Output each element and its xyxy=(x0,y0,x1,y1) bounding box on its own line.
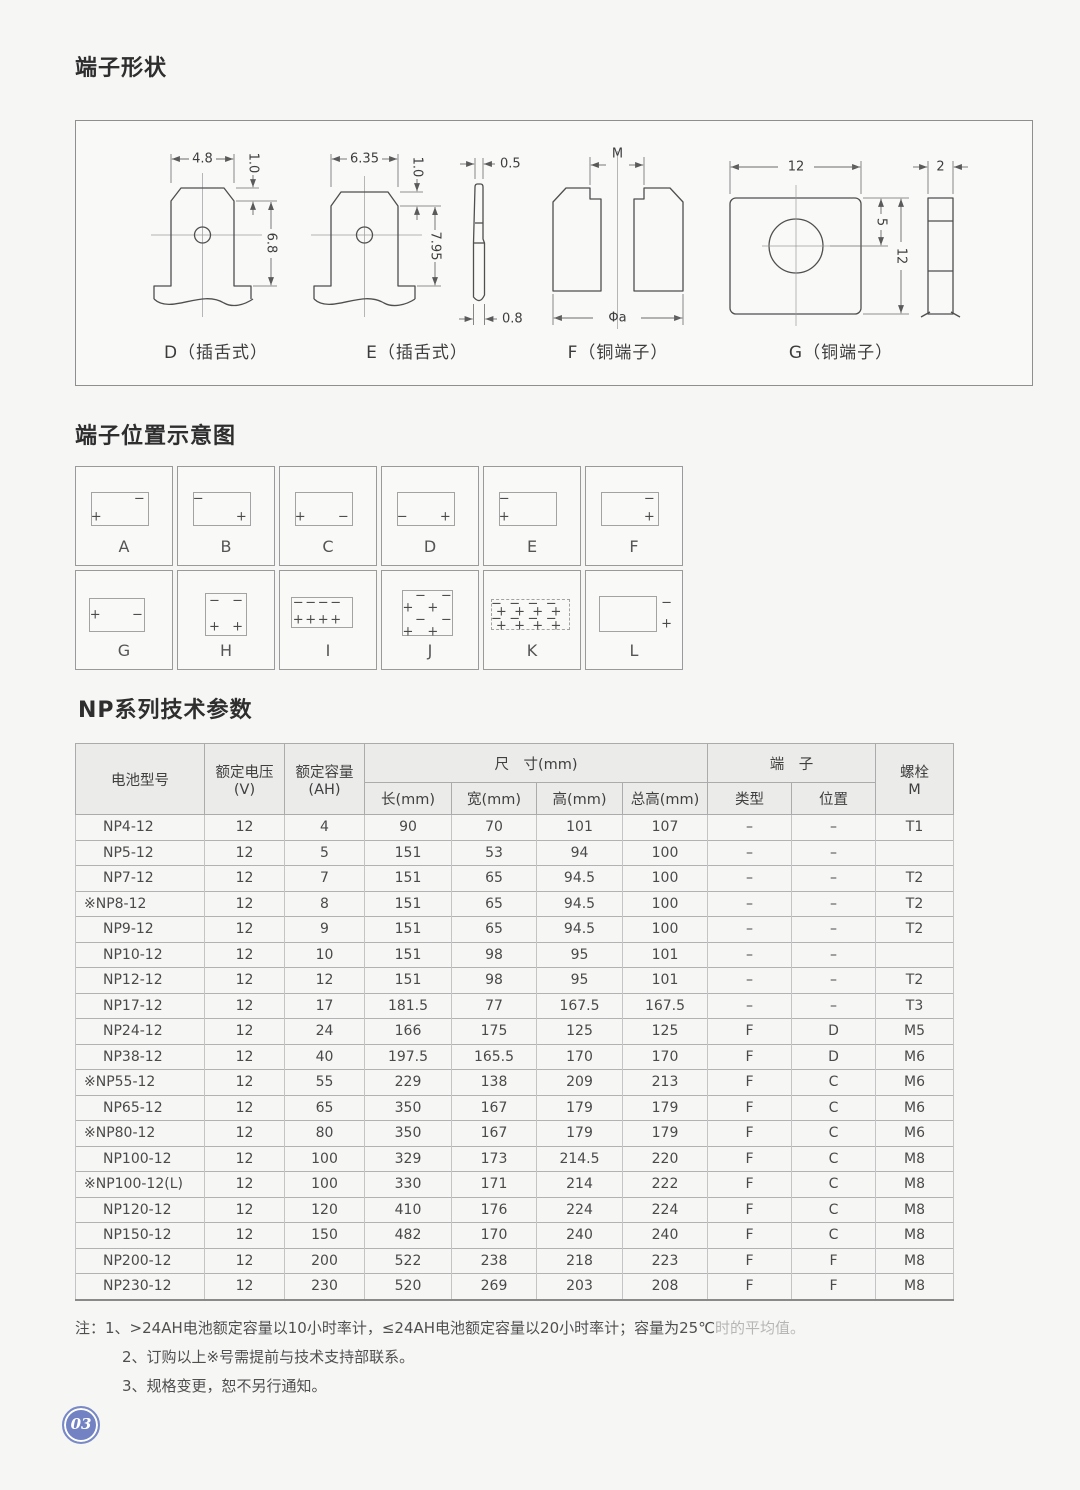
polarity-mark: − xyxy=(134,493,145,506)
terminal-shapes-panel: 4.8 1.0 6.8 D（插舌式） 6.35 xyxy=(75,120,1033,386)
col-header-bolt: 螺栓 M xyxy=(876,744,954,815)
value-cell: 167 xyxy=(452,1095,537,1121)
model-cell: NP9-12 xyxy=(76,917,205,943)
value-cell: – xyxy=(708,942,792,968)
value-cell: 5 xyxy=(285,840,365,866)
model-cell: ※NP55-12 xyxy=(76,1070,205,1096)
value-cell: 329 xyxy=(365,1146,452,1172)
dim-g-height: 12 xyxy=(894,248,909,265)
value-cell: 65 xyxy=(452,917,537,943)
value-cell: 12 xyxy=(205,866,285,892)
value-cell: C xyxy=(792,1197,876,1223)
value-cell: 12 xyxy=(205,1070,285,1096)
value-cell: F xyxy=(708,1223,792,1249)
footnotes: 注：1、>24AH电池额定容量以10小时率计，≤24AH电池额定容量以20小时率… xyxy=(75,1314,1080,1401)
value-cell: – xyxy=(708,840,792,866)
label-terminal-g: G（铜端子） xyxy=(789,343,893,363)
polarity-mark: − xyxy=(397,510,408,523)
model-cell: NP12-12 xyxy=(76,968,205,994)
dim-tab-thickness-bottom: 0.8 xyxy=(502,312,523,327)
polarity-mark: + xyxy=(427,602,438,615)
polarity-mark: − xyxy=(644,493,655,506)
np-series-spec-table: 电池型号 额定电压 (V) 额定容量 (AH) 尺 寸(mm) 端 子 螺栓 M… xyxy=(75,743,954,1301)
value-cell: 224 xyxy=(537,1197,623,1223)
value-cell: 214.5 xyxy=(537,1146,623,1172)
value-cell: 214 xyxy=(537,1172,623,1198)
value-cell: 229 xyxy=(365,1070,452,1096)
polarity-mark: − xyxy=(293,597,304,610)
value-cell: 101 xyxy=(537,815,623,841)
value-cell: 138 xyxy=(452,1070,537,1096)
value-cell: 94.5 xyxy=(537,891,623,917)
terminal-position-cell-H: −−++H xyxy=(177,570,275,670)
polarity-mark: + xyxy=(236,510,247,523)
value-cell: 240 xyxy=(623,1223,708,1249)
value-cell: 218 xyxy=(537,1248,623,1274)
value-cell: D xyxy=(792,1019,876,1045)
cell-letter: I xyxy=(280,641,376,660)
polarity-mark: + xyxy=(318,614,329,627)
value-cell: 179 xyxy=(623,1095,708,1121)
cell-letter: A xyxy=(76,537,172,556)
value-cell: 100 xyxy=(623,891,708,917)
value-cell: 167 xyxy=(452,1121,537,1147)
model-cell: NP4-12 xyxy=(76,815,205,841)
col-header-terminal: 端 子 xyxy=(708,744,876,783)
value-cell: 12 xyxy=(205,1197,285,1223)
table-row: NP17-121217181.577167.5167.5––T3 xyxy=(76,993,954,1019)
col-header-width: 宽(mm) xyxy=(452,783,537,815)
value-cell: T3 xyxy=(876,993,954,1019)
col-header-capacity-line2: (AH) xyxy=(285,782,364,798)
value-cell: 12 xyxy=(205,815,285,841)
cell-letter: B xyxy=(178,537,274,556)
label-terminal-d: D（插舌式） xyxy=(164,343,268,363)
value-cell: 24 xyxy=(285,1019,365,1045)
value-cell: 12 xyxy=(205,993,285,1019)
page-number-badge: 03 xyxy=(62,1406,100,1444)
polarity-mark: + xyxy=(293,614,304,627)
terminal-position-cell-G: +−G xyxy=(75,570,173,670)
value-cell: F xyxy=(708,1121,792,1147)
polarity-mark: + xyxy=(496,619,507,632)
note-line-3: 3、规格变更，恕不另行通知。 xyxy=(75,1372,1080,1401)
polarity-mark: − xyxy=(338,510,349,523)
polarity-mark: + xyxy=(532,619,543,632)
value-cell: F xyxy=(708,1070,792,1096)
model-cell: NP230-12 xyxy=(76,1274,205,1300)
value-cell: 200 xyxy=(285,1248,365,1274)
polarity-mark: + xyxy=(644,510,655,523)
section-title-np-series: NP系列技术参数 xyxy=(78,696,1080,726)
value-cell: 238 xyxy=(452,1248,537,1274)
terminal-position-cell-L: −+L xyxy=(585,570,683,670)
model-cell: NP24-12 xyxy=(76,1019,205,1045)
dim-e-width: 6.35 xyxy=(350,152,379,167)
value-cell: 120 xyxy=(285,1197,365,1223)
table-row: NP230-1212230520269203208FFM8 xyxy=(76,1274,954,1300)
model-cell: NP150-12 xyxy=(76,1223,205,1249)
value-cell: M6 xyxy=(876,1070,954,1096)
value-cell: M8 xyxy=(876,1197,954,1223)
section-title-terminal-shapes: 端子形状 xyxy=(75,0,1080,84)
cell-letter: D xyxy=(382,537,478,556)
table-row: NP100-1212100329173214.5220FCM8 xyxy=(76,1146,954,1172)
value-cell: 65 xyxy=(285,1095,365,1121)
value-cell: 12 xyxy=(205,942,285,968)
value-cell: 94 xyxy=(537,840,623,866)
value-cell: 240 xyxy=(537,1223,623,1249)
drawing-terminal-e: 6.35 1.0 7.95 E（插舌式） xyxy=(311,152,468,364)
value-cell: 176 xyxy=(452,1197,537,1223)
value-cell: 165.5 xyxy=(452,1044,537,1070)
dim-g-thickness: 2 xyxy=(936,160,944,175)
value-cell: 94.5 xyxy=(537,917,623,943)
value-cell: – xyxy=(792,968,876,994)
value-cell: 80 xyxy=(285,1121,365,1147)
value-cell: 10 xyxy=(285,942,365,968)
polarity-mark: − xyxy=(132,609,143,622)
value-cell: 101 xyxy=(623,942,708,968)
value-cell: 520 xyxy=(365,1274,452,1300)
value-cell: 12 xyxy=(205,1095,285,1121)
value-cell xyxy=(876,840,954,866)
col-header-model: 电池型号 xyxy=(76,744,205,815)
table-row: NP120-1212120410176224224FCM8 xyxy=(76,1197,954,1223)
value-cell: 65 xyxy=(452,866,537,892)
value-cell: F xyxy=(792,1248,876,1274)
terminal-position-cell-J: −−++−−++J xyxy=(381,570,479,670)
value-cell: M8 xyxy=(876,1223,954,1249)
col-header-length: 长(mm) xyxy=(365,783,452,815)
model-cell: NP17-12 xyxy=(76,993,205,1019)
polarity-mark: + xyxy=(440,510,451,523)
value-cell: 410 xyxy=(365,1197,452,1223)
polarity-mark: + xyxy=(661,617,672,630)
cell-letter: K xyxy=(484,641,580,660)
value-cell: 482 xyxy=(365,1223,452,1249)
value-cell: 95 xyxy=(537,968,623,994)
model-cell: NP100-12 xyxy=(76,1146,205,1172)
polarity-mark: − xyxy=(441,614,452,627)
value-cell: 151 xyxy=(365,968,452,994)
model-cell: ※NP80-12 xyxy=(76,1121,205,1147)
value-cell: 179 xyxy=(537,1095,623,1121)
terminal-position-cell-B: −+B xyxy=(177,466,275,566)
value-cell: 98 xyxy=(452,942,537,968)
terminal-position-grid: −+A−+B+−C−+D−+E−+F+−G−−++H−−−−++++I−−++−… xyxy=(75,466,683,670)
value-cell: F xyxy=(708,1172,792,1198)
polarity-mark: − xyxy=(661,597,672,610)
value-cell: 151 xyxy=(365,917,452,943)
value-cell: 12 xyxy=(285,968,365,994)
table-row: NP4-121249070101107––T1 xyxy=(76,815,954,841)
col-header-height: 高(mm) xyxy=(537,783,623,815)
value-cell: 40 xyxy=(285,1044,365,1070)
polarity-mark: + xyxy=(514,619,525,632)
value-cell: 269 xyxy=(452,1274,537,1300)
value-cell: 4 xyxy=(285,815,365,841)
polarity-mark: − xyxy=(441,590,452,603)
value-cell: M6 xyxy=(876,1044,954,1070)
dim-tab-thickness-top: 0.5 xyxy=(500,157,521,172)
value-cell: F xyxy=(708,1248,792,1274)
value-cell: – xyxy=(708,968,792,994)
value-cell: 167.5 xyxy=(537,993,623,1019)
value-cell: 94.5 xyxy=(537,866,623,892)
value-cell: 181.5 xyxy=(365,993,452,1019)
value-cell: 224 xyxy=(623,1197,708,1223)
value-cell: – xyxy=(792,840,876,866)
value-cell: 350 xyxy=(365,1095,452,1121)
spec-table-body: NP4-121249070101107––T1NP5-1212515153941… xyxy=(76,815,954,1300)
value-cell: 173 xyxy=(452,1146,537,1172)
value-cell: 12 xyxy=(205,1121,285,1147)
terminal-position-cell-C: +−C xyxy=(279,466,377,566)
polarity-mark: + xyxy=(402,602,413,615)
value-cell: 12 xyxy=(205,1044,285,1070)
value-cell: 522 xyxy=(365,1248,452,1274)
value-cell: 12 xyxy=(205,1172,285,1198)
value-cell: – xyxy=(792,917,876,943)
value-cell: 12 xyxy=(205,968,285,994)
drawing-terminal-g: 12 5 12 2 G（铜端子） xyxy=(730,160,968,364)
value-cell: 12 xyxy=(205,1223,285,1249)
polarity-mark: − xyxy=(209,595,220,608)
terminal-position-cell-F: −+F xyxy=(585,466,683,566)
polarity-mark: − xyxy=(415,614,426,627)
table-row: NP24-121224166175125125FDM5 xyxy=(76,1019,954,1045)
value-cell: – xyxy=(792,993,876,1019)
value-cell: – xyxy=(792,942,876,968)
value-cell: 220 xyxy=(623,1146,708,1172)
dim-e-bevel: 1.0 xyxy=(410,157,425,178)
polarity-mark: + xyxy=(402,625,413,638)
model-cell: NP5-12 xyxy=(76,840,205,866)
model-cell: NP200-12 xyxy=(76,1248,205,1274)
value-cell: 230 xyxy=(285,1274,365,1300)
value-cell: M8 xyxy=(876,1274,954,1300)
table-row: NP12-1212121519895101––T2 xyxy=(76,968,954,994)
polarity-mark: − xyxy=(232,595,243,608)
polarity-mark: + xyxy=(232,620,243,633)
note-line-1-faded-text: 时的平均值。 xyxy=(715,1319,805,1337)
polarity-mark: + xyxy=(305,614,316,627)
polarity-mark: − xyxy=(330,597,341,610)
value-cell: 170 xyxy=(537,1044,623,1070)
model-cell: ※NP8-12 xyxy=(76,891,205,917)
polarity-mark: + xyxy=(90,609,101,622)
value-cell: 170 xyxy=(452,1223,537,1249)
value-cell: 17 xyxy=(285,993,365,1019)
value-cell: 12 xyxy=(205,917,285,943)
dim-d-width: 4.8 xyxy=(192,152,213,167)
note-line-1-text: 注：1、>24AH电池额定容量以10小时率计，≤24AH电池额定容量以20小时率… xyxy=(75,1319,715,1337)
value-cell: – xyxy=(708,866,792,892)
value-cell: 151 xyxy=(365,840,452,866)
value-cell: 77 xyxy=(452,993,537,1019)
cell-letter: J xyxy=(382,641,478,660)
value-cell: 100 xyxy=(623,917,708,943)
table-row: NP10-1212101519895101–– xyxy=(76,942,954,968)
value-cell: 222 xyxy=(623,1172,708,1198)
value-cell: D xyxy=(792,1044,876,1070)
value-cell: 7 xyxy=(285,866,365,892)
dim-e-height: 7.95 xyxy=(428,232,443,261)
polarity-mark: + xyxy=(330,614,341,627)
value-cell: T2 xyxy=(876,968,954,994)
value-cell: 55 xyxy=(285,1070,365,1096)
col-header-capacity: 额定容量 (AH) xyxy=(285,744,365,815)
battery-outline xyxy=(599,596,657,632)
value-cell: 12 xyxy=(205,1019,285,1045)
terminal-position-cell-E: −+E xyxy=(483,466,581,566)
value-cell: 12 xyxy=(205,1146,285,1172)
cell-letter: F xyxy=(586,537,682,556)
table-row: ※NP55-121255229138209213FCM6 xyxy=(76,1070,954,1096)
terminal-shapes-drawing: 4.8 1.0 6.8 D（插舌式） 6.35 xyxy=(76,121,1032,385)
col-header-total-height: 总高(mm) xyxy=(623,783,708,815)
value-cell: F xyxy=(708,1274,792,1300)
value-cell: 125 xyxy=(537,1019,623,1045)
value-cell: C xyxy=(792,1070,876,1096)
value-cell: 179 xyxy=(623,1121,708,1147)
col-header-terminal-type: 类型 xyxy=(708,783,792,815)
note-line-2: 2、订购以上※号需提前与技术支持部联系。 xyxy=(75,1343,1080,1372)
value-cell: – xyxy=(792,891,876,917)
table-row: NP5-121251515394100–– xyxy=(76,840,954,866)
value-cell: 151 xyxy=(365,866,452,892)
value-cell: C xyxy=(792,1172,876,1198)
dim-g-hole-offset: 5 xyxy=(874,218,889,226)
value-cell: 100 xyxy=(285,1146,365,1172)
value-cell: – xyxy=(708,993,792,1019)
value-cell: 95 xyxy=(537,942,623,968)
model-cell: NP7-12 xyxy=(76,866,205,892)
value-cell: M8 xyxy=(876,1146,954,1172)
value-cell: 98 xyxy=(452,968,537,994)
value-cell: F xyxy=(708,1019,792,1045)
value-cell: 12 xyxy=(205,840,285,866)
value-cell: 12 xyxy=(205,1274,285,1300)
value-cell: T2 xyxy=(876,866,954,892)
table-row: ※NP8-121281516594.5100––T2 xyxy=(76,891,954,917)
value-cell: C xyxy=(792,1095,876,1121)
label-terminal-e: E（插舌式） xyxy=(366,343,468,363)
model-cell: ※NP100-12(L) xyxy=(76,1172,205,1198)
polarity-mark: + xyxy=(499,510,510,523)
value-cell: 166 xyxy=(365,1019,452,1045)
polarity-mark: − xyxy=(193,493,204,506)
value-cell: M6 xyxy=(876,1121,954,1147)
value-cell: 208 xyxy=(623,1274,708,1300)
table-row: ※NP100-12(L)12100330171214222FCM8 xyxy=(76,1172,954,1198)
polarity-mark: + xyxy=(209,620,220,633)
drawing-tab-side-view: 0.5 0.8 xyxy=(459,157,523,327)
value-cell: 12 xyxy=(205,891,285,917)
value-cell: 151 xyxy=(365,942,452,968)
model-cell: NP10-12 xyxy=(76,942,205,968)
value-cell: 12 xyxy=(205,1248,285,1274)
polarity-mark: − xyxy=(305,597,316,610)
table-row: NP38-121240197.5165.5170170FDM6 xyxy=(76,1044,954,1070)
polarity-mark: + xyxy=(295,510,306,523)
value-cell: 209 xyxy=(537,1070,623,1096)
col-header-capacity-line1: 额定容量 xyxy=(285,761,364,782)
value-cell: T2 xyxy=(876,917,954,943)
col-header-dimensions: 尺 寸(mm) xyxy=(365,744,708,783)
value-cell: 8 xyxy=(285,891,365,917)
model-cell: NP120-12 xyxy=(76,1197,205,1223)
col-header-bolt-line1: 螺栓 xyxy=(876,761,953,782)
model-cell: NP65-12 xyxy=(76,1095,205,1121)
value-cell: 197.5 xyxy=(365,1044,452,1070)
table-row: NP150-1212150482170240240FCM8 xyxy=(76,1223,954,1249)
col-header-voltage-line1: 额定电压 xyxy=(205,761,284,782)
dim-f-diameter: Φa xyxy=(608,311,626,326)
value-cell: F xyxy=(708,1146,792,1172)
note-line-1: 注：1、>24AH电池额定容量以10小时率计，≤24AH电池额定容量以20小时率… xyxy=(75,1314,1080,1343)
value-cell: 125 xyxy=(623,1019,708,1045)
polarity-mark: − xyxy=(318,597,329,610)
dim-g-width: 12 xyxy=(788,160,805,175)
value-cell: M5 xyxy=(876,1019,954,1045)
col-header-voltage-line2: (V) xyxy=(205,782,284,798)
value-cell: 151 xyxy=(365,891,452,917)
value-cell: 100 xyxy=(623,840,708,866)
value-cell: 107 xyxy=(623,815,708,841)
value-cell: M8 xyxy=(876,1248,954,1274)
terminal-position-cell-I: −−−−++++I xyxy=(279,570,377,670)
value-cell: – xyxy=(792,815,876,841)
value-cell: M8 xyxy=(876,1172,954,1198)
terminal-position-cell-D: −+D xyxy=(381,466,479,566)
value-cell: 167.5 xyxy=(623,993,708,1019)
label-terminal-f: F（铜端子） xyxy=(568,343,669,363)
value-cell: 179 xyxy=(537,1121,623,1147)
value-cell: F xyxy=(708,1197,792,1223)
terminal-position-cell-K: −−−−++++−−−−++++K xyxy=(483,570,581,670)
value-cell: 170 xyxy=(623,1044,708,1070)
value-cell: 70 xyxy=(452,815,537,841)
value-cell: F xyxy=(792,1274,876,1300)
cell-letter: C xyxy=(280,537,376,556)
value-cell: M6 xyxy=(876,1095,954,1121)
value-cell: 100 xyxy=(623,866,708,892)
value-cell: – xyxy=(708,815,792,841)
value-cell: F xyxy=(708,1044,792,1070)
value-cell: 150 xyxy=(285,1223,365,1249)
value-cell: 213 xyxy=(623,1070,708,1096)
polarity-mark: − xyxy=(499,493,510,506)
value-cell: 9 xyxy=(285,917,365,943)
value-cell xyxy=(876,942,954,968)
value-cell: T2 xyxy=(876,891,954,917)
polarity-mark: + xyxy=(427,625,438,638)
value-cell: – xyxy=(708,917,792,943)
value-cell: C xyxy=(792,1121,876,1147)
cell-letter: L xyxy=(586,641,682,660)
value-cell: C xyxy=(792,1146,876,1172)
col-header-voltage: 额定电压 (V) xyxy=(205,744,285,815)
drawing-terminal-d: 4.8 1.0 6.8 D（插舌式） xyxy=(151,152,279,364)
drawing-terminal-f: M Φa F（铜端子） xyxy=(553,147,683,364)
table-row: ※NP80-121280350167179179FCM6 xyxy=(76,1121,954,1147)
value-cell: 175 xyxy=(452,1019,537,1045)
col-header-terminal-position: 位置 xyxy=(792,783,876,815)
terminal-position-cell-A: −+A xyxy=(75,466,173,566)
polarity-mark: + xyxy=(91,510,102,523)
